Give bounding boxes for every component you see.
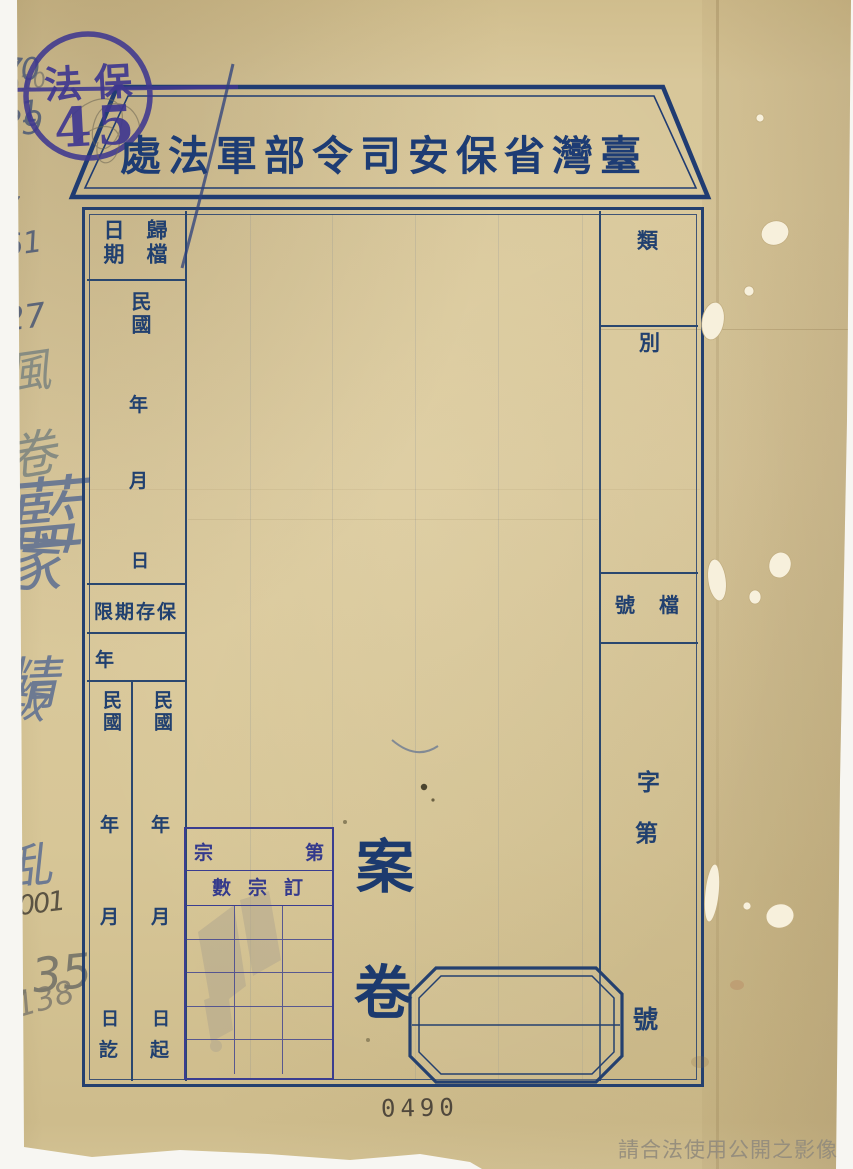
retention-year-label: 年 bbox=[95, 645, 114, 672]
scanned-archive-cover: 法保 45 010 處法軍部令司安保省灣臺 歸檔 日期 民國 年 月 日 限期存… bbox=[0, 0, 853, 1169]
end-year-label: 年 bbox=[100, 810, 119, 837]
case-label-top: 案 bbox=[356, 820, 414, 904]
date-subcolumn-divider bbox=[131, 680, 133, 1081]
end-era: 民國 bbox=[98, 690, 125, 734]
end-month-label: 月 bbox=[100, 902, 119, 929]
filing-day-label: 日 bbox=[131, 547, 149, 573]
mini-table-header-row1: 宗 第 bbox=[186, 829, 332, 871]
mini-table-cell bbox=[186, 973, 235, 1007]
binding-count-table: 宗 第 數宗訂續 bbox=[184, 827, 334, 1080]
image-usage-watermark: 請合法使用公開之影像 bbox=[618, 1134, 838, 1164]
category-header-bottom: 別 bbox=[639, 327, 660, 357]
mini-table-cell bbox=[235, 906, 284, 940]
start-era: 民國 bbox=[149, 690, 176, 734]
fileno-hao: 號 bbox=[633, 1000, 658, 1036]
office-banner-title: 處法軍部令司安保省灣臺 bbox=[120, 122, 640, 182]
fileno-header-right: 檔 bbox=[659, 589, 679, 618]
row-line bbox=[87, 583, 185, 585]
row-line bbox=[87, 632, 185, 634]
filing-year-label: 年 bbox=[129, 390, 148, 417]
row-line bbox=[87, 279, 185, 281]
mini-table-cell bbox=[283, 973, 332, 1007]
end-suffix: 訖 bbox=[99, 1035, 118, 1062]
mini-table-cell bbox=[235, 1040, 284, 1074]
case-label-bottom: 卷 bbox=[354, 946, 412, 1030]
fileno-header-left: 號 bbox=[615, 589, 635, 618]
filing-header-right: 歸檔 bbox=[141, 219, 171, 267]
mini-table-di: 第 bbox=[305, 838, 324, 865]
mini-table-cell bbox=[235, 1007, 284, 1041]
end-day-label: 日 bbox=[101, 1005, 119, 1031]
mini-table-cell bbox=[186, 906, 235, 940]
mini-table-header-row2: 數宗訂續 bbox=[186, 871, 332, 906]
retention-header: 限期存保 bbox=[88, 597, 184, 624]
start-month-label: 月 bbox=[151, 902, 170, 929]
start-suffix: 起 bbox=[150, 1035, 169, 1062]
paper-sheet: 法保 45 010 處法軍部令司安保省灣臺 歸檔 日期 民國 年 月 日 限期存… bbox=[0, 0, 853, 1169]
row-line bbox=[87, 680, 185, 682]
fileno-zi: 字 bbox=[637, 763, 660, 797]
filing-month-label: 月 bbox=[129, 466, 148, 493]
page-stamp-number: 0490 bbox=[381, 1093, 459, 1122]
mini-table-cell bbox=[283, 940, 332, 974]
filing-era: 民國 bbox=[126, 291, 155, 337]
mini-table-cell bbox=[186, 940, 235, 974]
mini-table-cell bbox=[186, 1040, 235, 1074]
mini-table-cell bbox=[283, 906, 332, 940]
row-line bbox=[601, 642, 698, 644]
mini-table-cell bbox=[283, 1040, 332, 1074]
fileno-di: 第 bbox=[635, 814, 658, 848]
mini-table-zong: 宗 bbox=[194, 838, 213, 865]
category-header-top: 類 bbox=[637, 225, 658, 255]
security-stamp-number: 45 bbox=[52, 92, 140, 160]
filing-header-left: 日期 bbox=[98, 219, 128, 267]
start-year-label: 年 bbox=[151, 810, 170, 837]
right-column-divider bbox=[599, 211, 601, 1081]
row-line bbox=[601, 572, 698, 574]
mini-table-cell bbox=[186, 1007, 235, 1041]
mini-table-cell bbox=[283, 1007, 332, 1041]
start-day-label: 日 bbox=[152, 1005, 170, 1031]
mini-table-cell bbox=[235, 940, 284, 974]
mini-table-grid bbox=[186, 906, 332, 1074]
mini-table-cell bbox=[235, 973, 284, 1007]
